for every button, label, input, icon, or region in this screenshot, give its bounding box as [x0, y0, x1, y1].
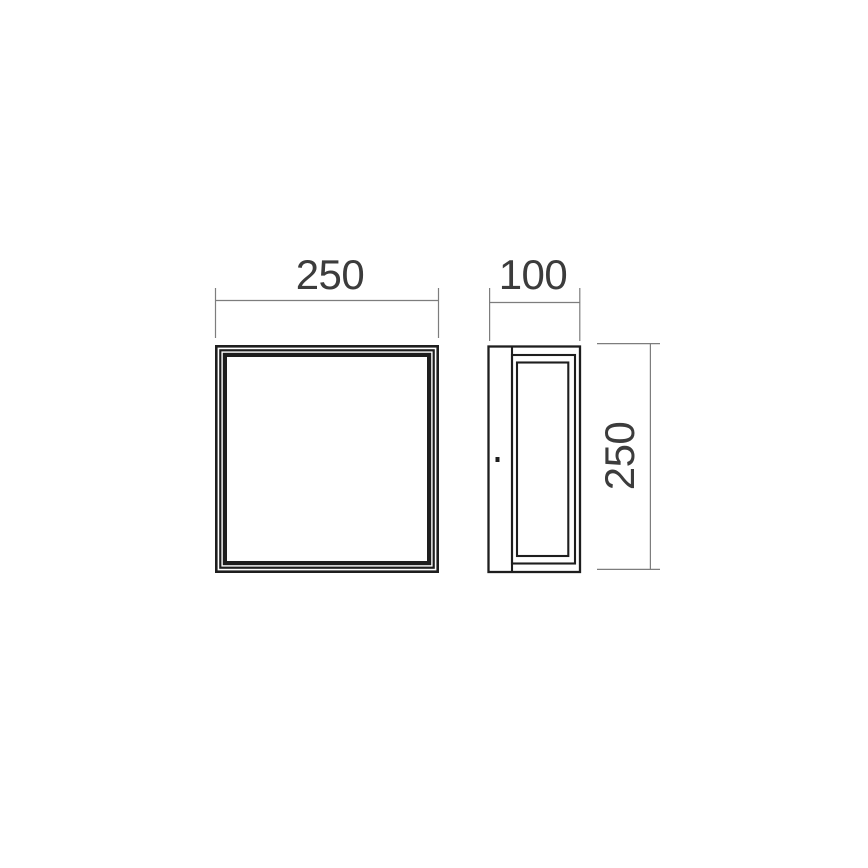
side-outline	[489, 347, 581, 573]
depth-dimension: 100	[490, 251, 580, 341]
technical-drawing-canvas: 250 100 250	[0, 0, 868, 868]
dimension-drawing: 250 100 250	[0, 0, 868, 868]
width-dimension: 250	[216, 251, 439, 338]
side-frame-step-2	[517, 363, 568, 557]
side-view	[489, 347, 581, 573]
side-screw-dot	[496, 457, 500, 462]
front-view	[215, 345, 439, 573]
depth-dimension-label: 100	[499, 251, 568, 298]
front-glass-panel	[227, 357, 427, 561]
height-dimension-label: 250	[596, 422, 643, 491]
height-dimension: 250	[596, 344, 660, 570]
side-frame-step-1	[512, 355, 575, 564]
width-dimension-label: 250	[296, 251, 365, 298]
